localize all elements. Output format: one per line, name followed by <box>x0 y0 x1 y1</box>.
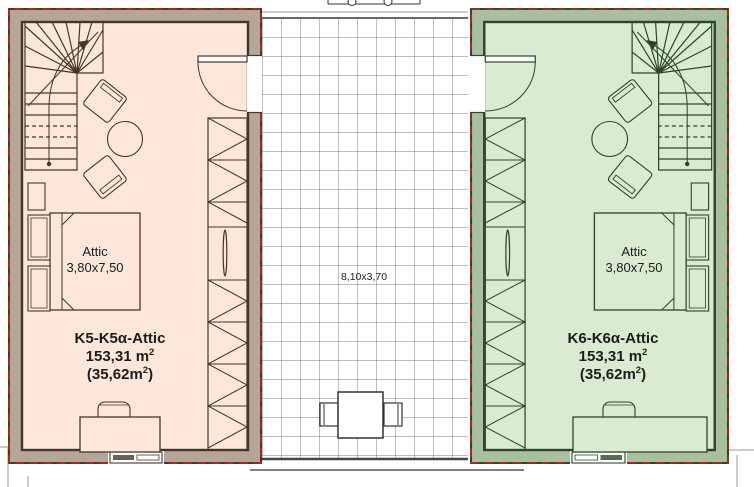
room-label-right: Attic 3,80x7,50 <box>574 244 694 276</box>
unit-area-right: 153,31 m2 <box>533 348 693 366</box>
room-size-right: 3,80x7,50 <box>574 260 694 276</box>
floor-plan-canvas: Attic 3,80x7,50 K5-K5α-Attic 153,31 m2 (… <box>0 0 754 487</box>
unit-name-left: K5-K5α-Attic <box>40 330 200 348</box>
desk-chair-left <box>98 402 130 417</box>
desk-left <box>80 402 160 452</box>
room-size-left: 3,80x7,50 <box>35 260 155 276</box>
unit-subarea-right: (35,62m2) <box>533 366 693 384</box>
room-name-left: Attic <box>35 244 155 260</box>
desk-right <box>573 402 707 452</box>
unit-info-left: K5-K5α-Attic 153,31 m2 (35,62m2) <box>40 330 200 384</box>
desk-chair-right <box>603 402 635 417</box>
unit-info-right: K6-K6α-Attic 153,31 m2 (35,62m2) <box>533 330 693 384</box>
unit-subarea-left: (35,62m2) <box>40 366 200 384</box>
unit-name-right: K6-K6α-Attic <box>533 330 693 348</box>
unit-area-left: 153,31 m2 <box>40 348 200 366</box>
terrace-dimension-label: 8,10x3,70 <box>314 271 414 283</box>
room-name-right: Attic <box>574 244 694 260</box>
room-label-left: Attic 3,80x7,50 <box>35 244 155 276</box>
